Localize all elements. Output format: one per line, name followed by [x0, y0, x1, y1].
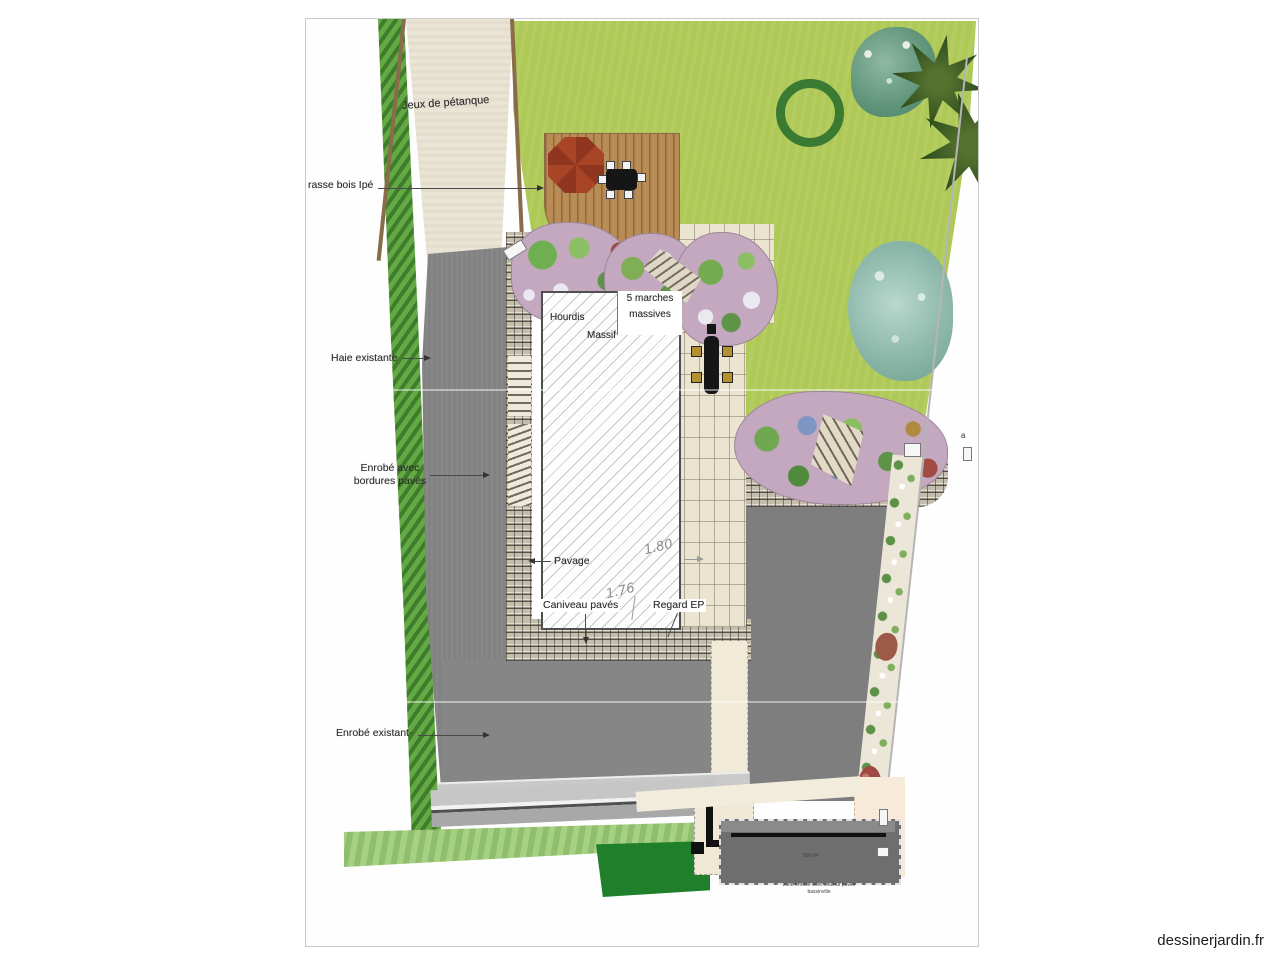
arrow-dim-180	[684, 559, 698, 560]
boundary-marker	[963, 447, 972, 461]
label-haie: Haie existante	[331, 352, 398, 365]
bottom-note-line2: bassinville	[734, 889, 904, 896]
arrowhead-enrobe-bordures	[483, 472, 490, 478]
label-marches: 5 marches massives	[617, 291, 682, 335]
arrow-caniveau	[585, 614, 586, 638]
scan-streak	[306, 389, 978, 391]
arrow-pavage	[535, 561, 551, 562]
red-shrub-icon	[874, 632, 899, 662]
label-marches-line1: 5 marches	[620, 293, 680, 305]
arrowhead-enrobe-existant	[483, 732, 490, 738]
blue-tree-icon	[848, 241, 953, 381]
arrow-enrobe-bordures	[430, 475, 484, 476]
garden-plan-screenshot: 560 m² Jeux de pétanque rasse bois Ipé H…	[0, 0, 1280, 960]
dining-table-icon	[598, 161, 646, 199]
label-enrobe-bordures-line2: bordures pavés	[344, 475, 436, 488]
circular-hedge-icon	[776, 79, 844, 147]
arrowhead-caniveau	[583, 637, 589, 644]
arrowhead-haie	[424, 355, 431, 361]
arrowhead-pavage	[528, 558, 535, 564]
watermark: dessinerjardin.fr	[1157, 932, 1264, 949]
arrow-terrasse	[378, 188, 538, 189]
steps-left-lower	[508, 424, 531, 506]
patio-table-icon	[689, 324, 733, 412]
label-pavage: Pavage	[554, 555, 590, 568]
label-marches-line2: massives	[620, 309, 680, 321]
bottom-note: zone enrobé avec couleur pavés bassinvil…	[734, 882, 904, 895]
label-regard: Regard EP	[651, 599, 706, 612]
area-note: 560 m²	[781, 853, 841, 860]
paved-zone-annotation-area: 560 m²	[719, 819, 901, 885]
arrowhead-terrasse	[537, 185, 544, 191]
label-enrobe-existant: Enrobé existant-	[336, 727, 412, 740]
mark-a: a	[961, 431, 965, 441]
label-enrobe-bordures-line1: Enrobé avec	[344, 462, 436, 475]
white-marker	[904, 443, 921, 457]
plan-page: 560 m² Jeux de pétanque rasse bois Ipé H…	[305, 18, 979, 947]
scan-streak	[306, 701, 978, 703]
label-terrasse: rasse bois Ipé	[308, 179, 373, 192]
parasol-icon	[548, 137, 604, 193]
label-hourdis: Hourdis	[550, 312, 584, 324]
label-enrobe-bordures: Enrobé avec bordures pavés	[344, 462, 436, 487]
arrowhead-dim-180	[697, 556, 704, 562]
arrow-enrobe-existant	[418, 735, 484, 736]
arrow-haie	[403, 358, 425, 359]
petanque-strip	[398, 19, 516, 262]
label-massif: Massif	[587, 330, 616, 342]
steps-left-upper	[508, 356, 531, 416]
utility-box-icon	[879, 809, 888, 826]
